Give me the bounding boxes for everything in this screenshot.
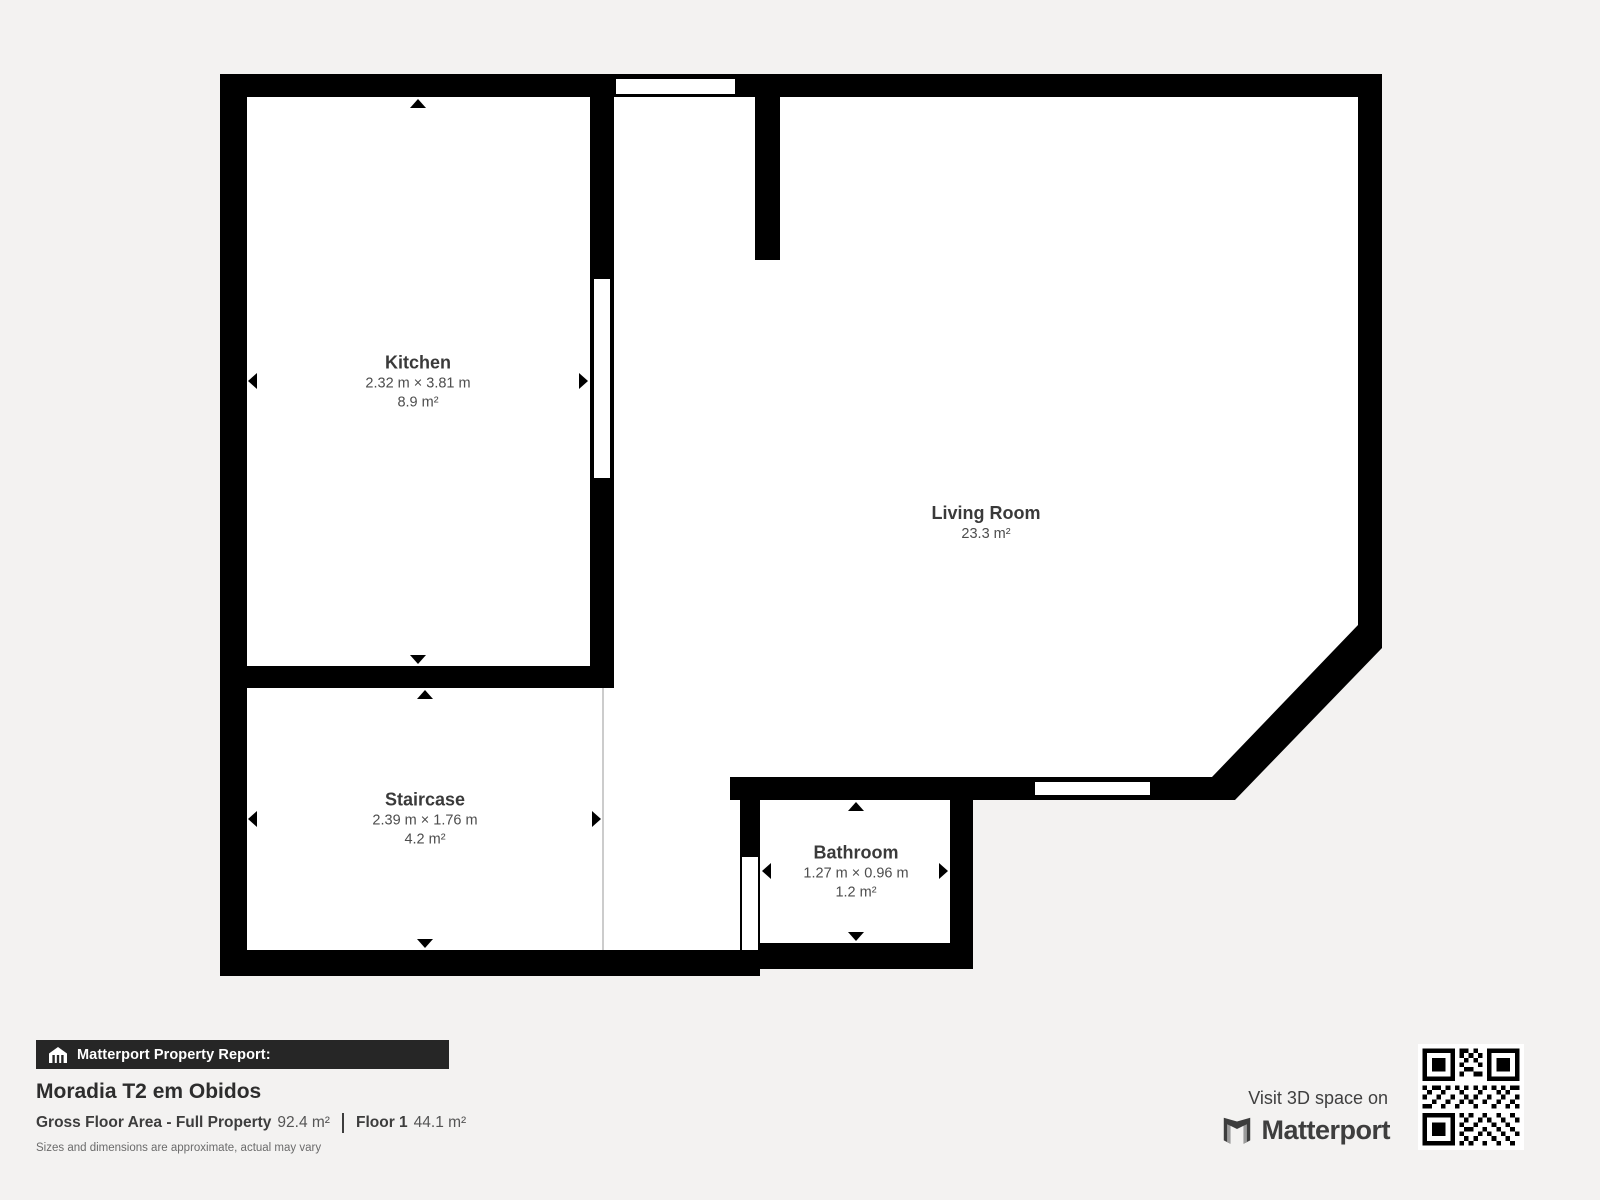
- house-icon: [49, 1047, 67, 1063]
- room-area: 8.9 m²: [365, 394, 470, 413]
- visit-3d-block: Visit 3D space on Matterport: [1220, 1088, 1391, 1147]
- room-name: Kitchen: [365, 351, 470, 374]
- room-dimensions: 1.27 m × 0.96 m: [803, 865, 908, 884]
- wall-bottom: [220, 950, 760, 976]
- visit-3d-text: Visit 3D space on: [1220, 1088, 1391, 1109]
- wall-left: [220, 74, 247, 976]
- matterport-wordmark: Matterport: [1262, 1115, 1391, 1146]
- bathroom-door-opening: [742, 857, 758, 950]
- wall-bathroom-bottom: [740, 943, 973, 969]
- entry-door-opening: [616, 79, 735, 94]
- room-name: Staircase: [372, 788, 477, 811]
- livingroom-window: [1035, 782, 1150, 795]
- room-label-living-room: Living Room 23.3 m²: [932, 502, 1041, 544]
- room-dimensions: 2.39 m × 1.76 m: [372, 812, 477, 831]
- matterport-logo-icon: [1220, 1113, 1254, 1147]
- room-label-bathroom: Bathroom 1.27 m × 0.96 m 1.2 m²: [803, 841, 908, 902]
- floor-plan-canvas: [0, 0, 1600, 1200]
- matterport-brand: Matterport: [1220, 1113, 1391, 1147]
- room-area: 4.2 m²: [372, 831, 477, 850]
- floor-label: Floor 1: [356, 1114, 408, 1132]
- room-area: 1.2 m²: [803, 884, 908, 903]
- gross-floor-area-label: Gross Floor Area - Full Property: [36, 1114, 271, 1132]
- metrics-divider: [342, 1113, 344, 1133]
- kitchen-window: [594, 279, 610, 478]
- room-dimensions: 2.32 m × 3.81 m: [365, 375, 470, 394]
- room-area: 23.3 m²: [932, 525, 1041, 544]
- wall-right: [1358, 74, 1382, 648]
- qr-code: [1418, 1044, 1524, 1150]
- room-label-kitchen: Kitchen 2.32 m × 3.81 m 8.9 m²: [365, 351, 470, 412]
- report-bar-label: Matterport Property Report:: [77, 1047, 271, 1063]
- wall-bathroom-right: [950, 777, 973, 969]
- room-label-staircase: Staircase 2.39 m × 1.76 m 4.2 m²: [372, 788, 477, 849]
- report-header-bar: Matterport Property Report:: [36, 1040, 449, 1069]
- disclaimer-text: Sizes and dimensions are approximate, ac…: [36, 1142, 321, 1154]
- gross-floor-area-value: 92.4 m²: [277, 1114, 330, 1132]
- wall-entry-stub: [755, 97, 780, 260]
- room-name: Bathroom: [803, 841, 908, 864]
- wall-livingroom-bottom: [730, 777, 1235, 800]
- area-metrics: Gross Floor Area - Full Property 92.4 m²…: [36, 1113, 466, 1133]
- wall-top: [220, 74, 1382, 97]
- room-name: Living Room: [932, 502, 1041, 525]
- property-title: Moradia T2 em Obidos: [36, 1080, 261, 1104]
- floor-value: 44.1 m²: [414, 1114, 467, 1132]
- wall-kitchen-staircase-divider: [220, 666, 614, 688]
